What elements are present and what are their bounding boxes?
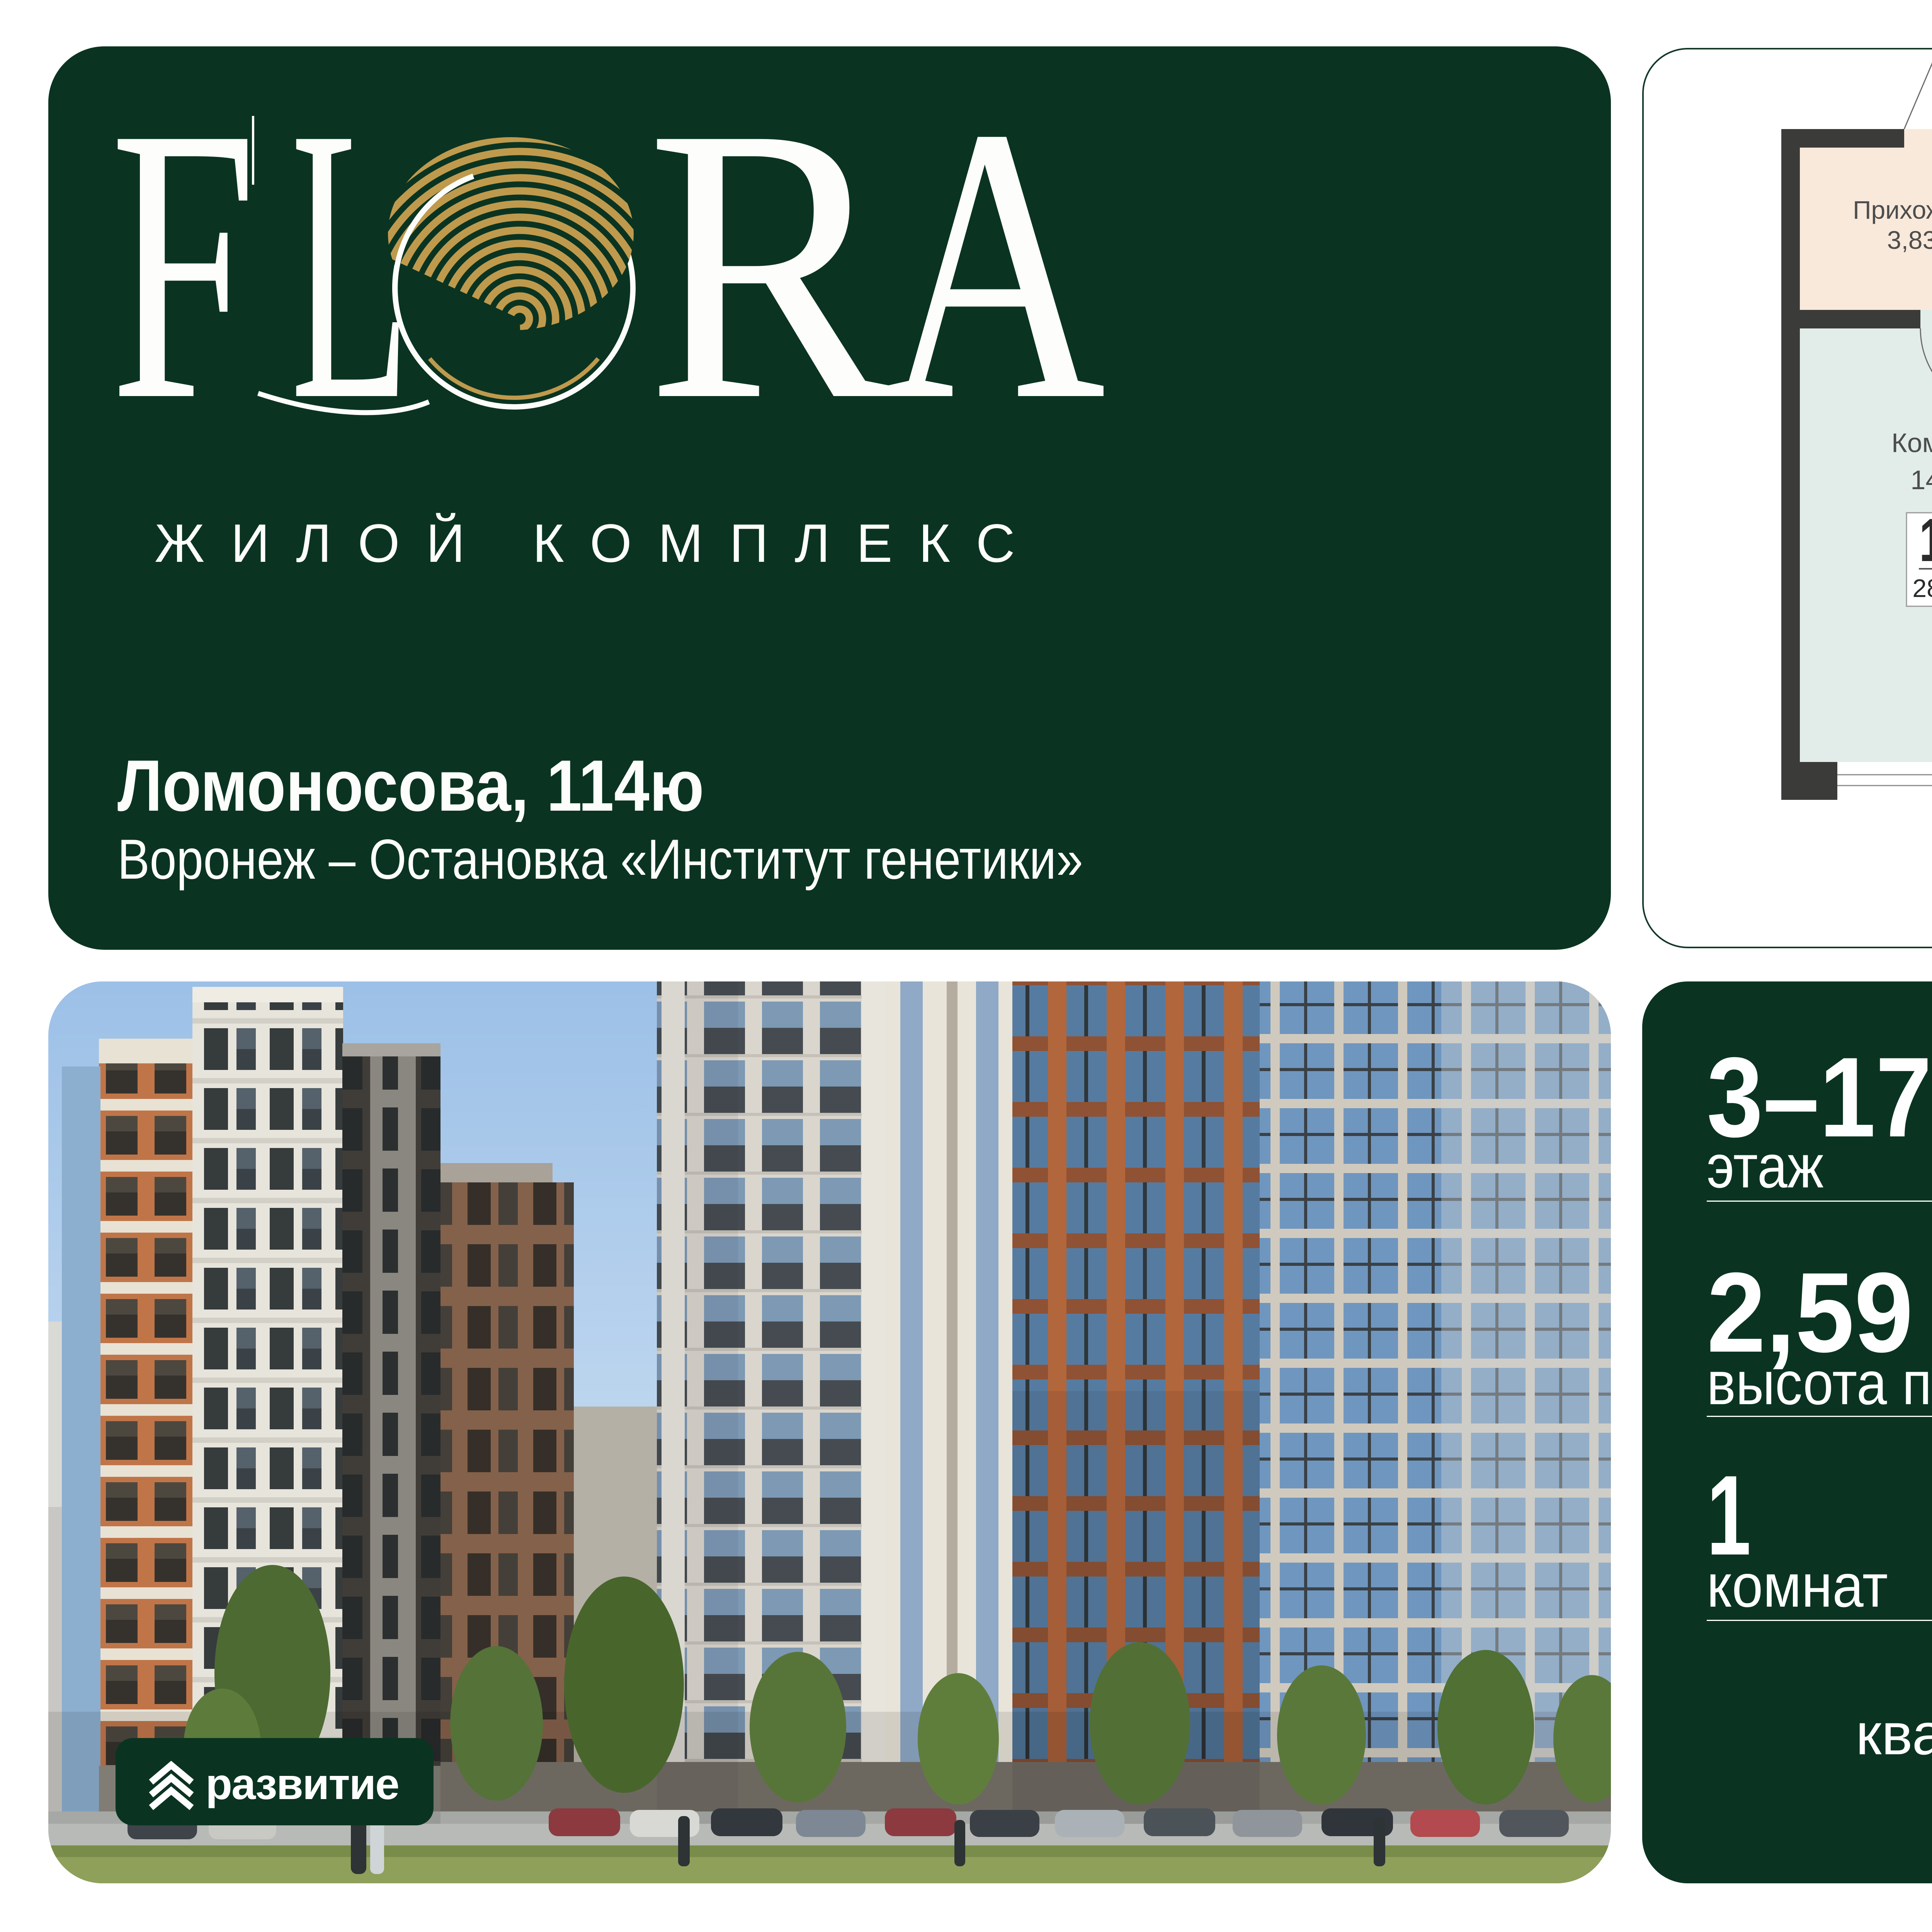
svg-text:3,83: 3,83: [1887, 226, 1932, 254]
svg-text:Комната: Комната: [1891, 428, 1932, 458]
svg-text:1с: 1с: [1919, 506, 1932, 574]
svg-text:Прихожая: Прихожая: [1853, 196, 1932, 224]
svg-text:28,75: 28,75: [1912, 574, 1932, 602]
svg-text:14,31: 14,31: [1910, 465, 1932, 495]
svg-text:развитие: развитие: [206, 1760, 399, 1808]
